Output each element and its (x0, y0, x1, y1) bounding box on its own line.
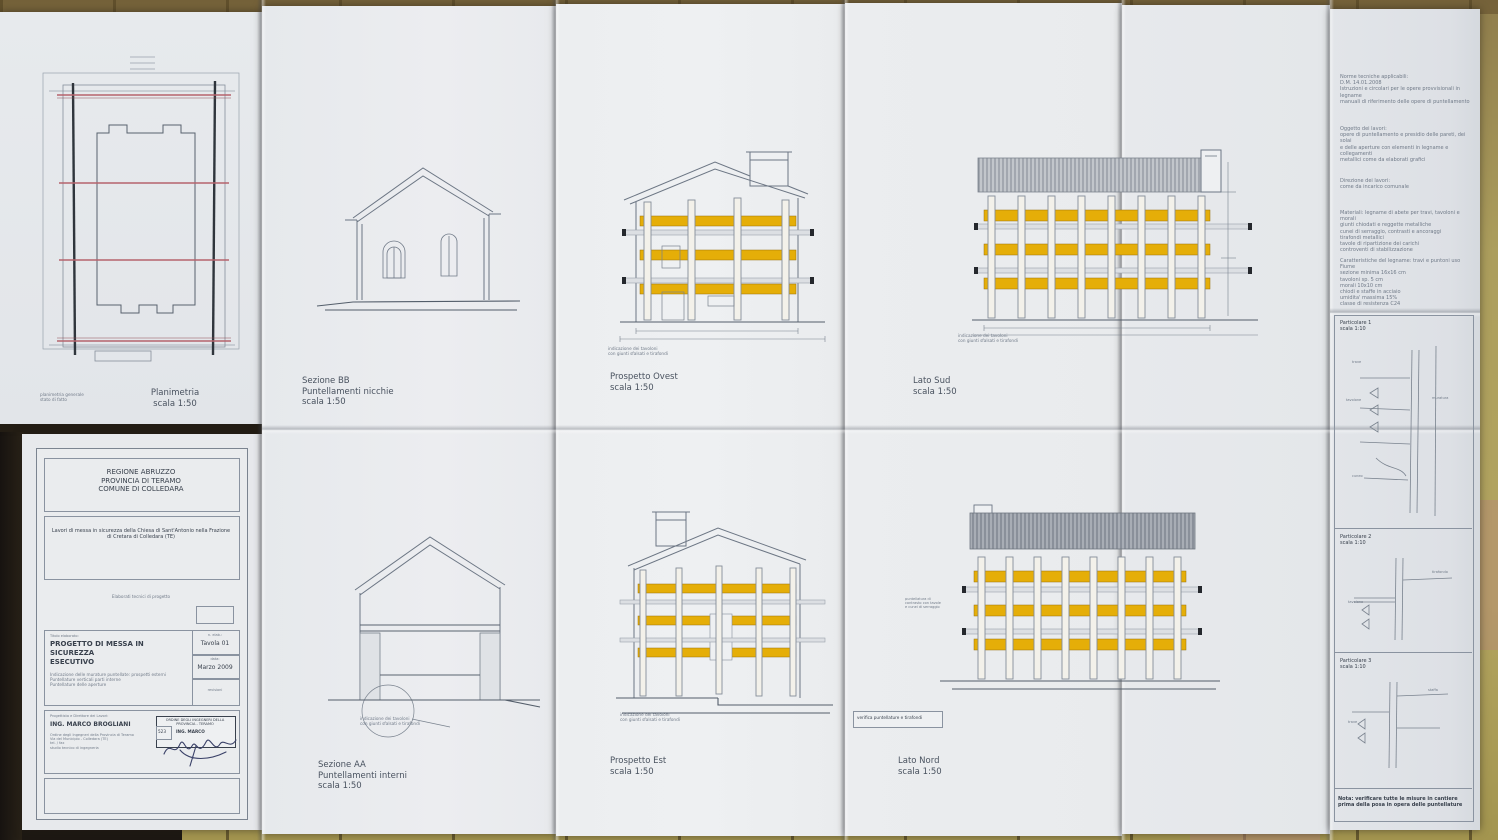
doc-subtitle: ESECUTIVO (50, 658, 94, 667)
particolare-1-tag-trave: trave (1352, 360, 1361, 364)
planimetria-note: planimetria generale stato di fatto (40, 392, 84, 402)
title-block-project: Lavori di messa in sicurezza della Chies… (50, 528, 232, 540)
lato-nord-drawing (900, 505, 1230, 725)
lato-sud-caption: indicazione dei tavoloni con giunti sfal… (958, 333, 1018, 343)
doc-lines: Indicazione delle murature puntellate: p… (50, 672, 185, 688)
prospetto-est-drawing (598, 508, 848, 733)
particolare-2-tag-tavolone: tavolone (1348, 600, 1363, 604)
prospetto-ovest-label: Prospetto Ovest scala 1:50 (610, 372, 678, 393)
sezione-aa-caption: indicazione dei tavoloni con giunti sfal… (360, 716, 420, 726)
planimetria-label: Planimetria scala 1:50 (130, 388, 220, 409)
fold-crease-1 (257, 0, 266, 840)
prospetto-ovest-caption: indicazione dei tavoloni con giunti sfal… (608, 346, 668, 356)
notes-paragraph-4: Materiali: legname di abete per travi, t… (1340, 210, 1470, 253)
tavola-value: Tavola 01 (192, 640, 238, 648)
particolare-3-tag-trave: trave (1348, 720, 1357, 724)
notes-paragraph-5: Caratteristiche del legname: travi e pun… (1340, 258, 1470, 308)
details-divider-3 (1334, 788, 1472, 789)
particolare-1-tag-cuneo: cuneo (1352, 474, 1363, 478)
particolare-3-label: Particolare 3 scala 1:10 (1340, 658, 1371, 670)
sezione-aa-drawing (300, 515, 560, 750)
title-block-header: REGIONE ABRUZZO PROVINCIA DI TERAMO COMU… (44, 468, 238, 494)
notes-paragraph-3: Direzione dei lavori: come da incarico c… (1340, 178, 1470, 190)
prospetto-ovest-drawing (600, 150, 845, 355)
particolare-1-tag-tavolone: tavolone (1346, 398, 1361, 402)
doc-title: PROGETTO DI MESSA IN SICUREZZA (50, 640, 185, 657)
sezione-bb-drawing (295, 150, 550, 345)
doc-title-label: Titolo elaborato: (50, 634, 79, 638)
fold-crease-horizontal (262, 425, 1480, 434)
shadow-left-edge (0, 432, 24, 840)
title-block-small-box (196, 606, 234, 624)
lato-nord-note: puntellatura di contrasto con tavole e c… (905, 597, 945, 610)
particolare-3-tag-staffa: staffa (1428, 688, 1438, 692)
prospetto-est-label: Prospetto Est scala 1:50 (610, 756, 666, 777)
title-block-project-box (44, 516, 240, 580)
date-value: Marzo 2009 (192, 664, 238, 672)
planimetria-drawing (35, 55, 250, 365)
empty-bottom-box (44, 778, 240, 814)
date-label: data: (192, 657, 238, 661)
notes-paragraph-1: Norme tecniche applicabili: D.M. 14.01.2… (1340, 74, 1470, 105)
signature-scribble (160, 732, 240, 766)
notes-paragraph-2: Oggetto dei lavori: opere di puntellamen… (1340, 126, 1470, 163)
prospetto-est-caption: indicazione dei tavoloni con giunti sfal… (620, 712, 680, 722)
photo-of-architectural-plan: planimetria generale stato di fatto Plan… (0, 0, 1498, 840)
sezione-bb-label: Sezione BB Puntellamenti nicchie scala 1… (302, 376, 394, 408)
tavola-label: n. elab.: (192, 633, 238, 637)
fold-crease-5 (1325, 0, 1334, 840)
designer-name: ING. MARCO BROGLIANI (50, 721, 131, 729)
particolare-2-tag-tirafondo: tirafondo (1432, 570, 1448, 574)
particolare-1-label: Particolare 1 scala 1:10 (1340, 320, 1371, 332)
sezione-aa-label: Sezione AA Puntellamenti interni scala 1… (318, 760, 407, 792)
particolare-1-tag-muratura: muratura (1432, 396, 1448, 400)
title-block-middle-note: Elaborati tecnici di progetto (44, 594, 238, 599)
rev-label: revisioni (192, 688, 238, 692)
details-divider-2 (1334, 652, 1472, 653)
floor-tile-pink-right (1478, 500, 1498, 650)
lato-sud-drawing (958, 148, 1263, 343)
right-column-footer: Nota: verificare tutte le misure in cant… (1338, 796, 1470, 808)
lato-nord-label: Lato Nord scala 1:50 (898, 756, 942, 777)
particolare-2-label: Particolare 2 scala 1:10 (1340, 534, 1371, 546)
designer-label: Progettista e Direttore dei Lavori: (50, 714, 108, 718)
particolare-2-sketch (1340, 550, 1466, 648)
stamp-strip-text: verifica puntellature e tirafondi (857, 715, 939, 720)
details-divider-1 (1334, 528, 1472, 529)
particolare-3-sketch (1340, 672, 1466, 782)
particolare-1-sketch (1340, 338, 1466, 523)
lato-sud-label: Lato Sud scala 1:50 (913, 376, 957, 397)
designer-info: Ordine degli Ingegneri della Provincia d… (50, 733, 150, 750)
